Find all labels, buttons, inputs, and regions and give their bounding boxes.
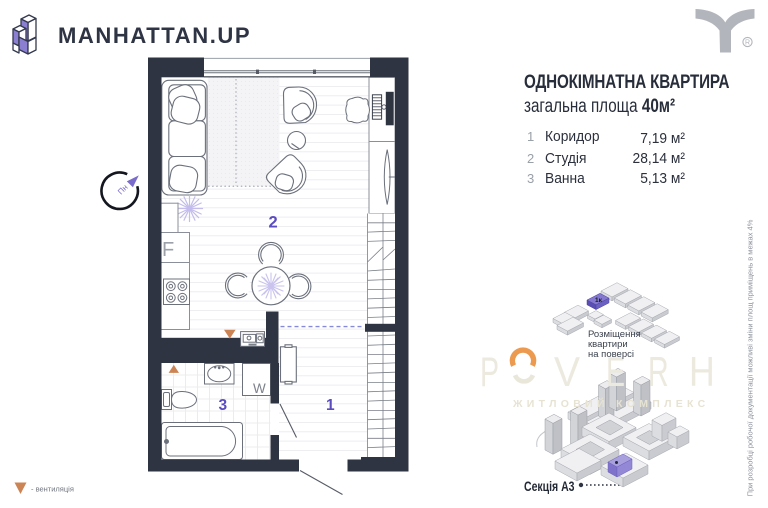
svg-text:F: F [162,239,174,261]
svg-text:2: 2 [269,214,278,232]
svg-text:- вентиляція: - вентиляція [31,485,74,494]
svg-text:W: W [253,381,266,396]
svg-text:1к: 1к [595,297,603,304]
svg-text:1: 1 [326,397,335,414]
svg-text:Пн: Пн [116,183,130,197]
svg-text:3: 3 [219,397,228,414]
